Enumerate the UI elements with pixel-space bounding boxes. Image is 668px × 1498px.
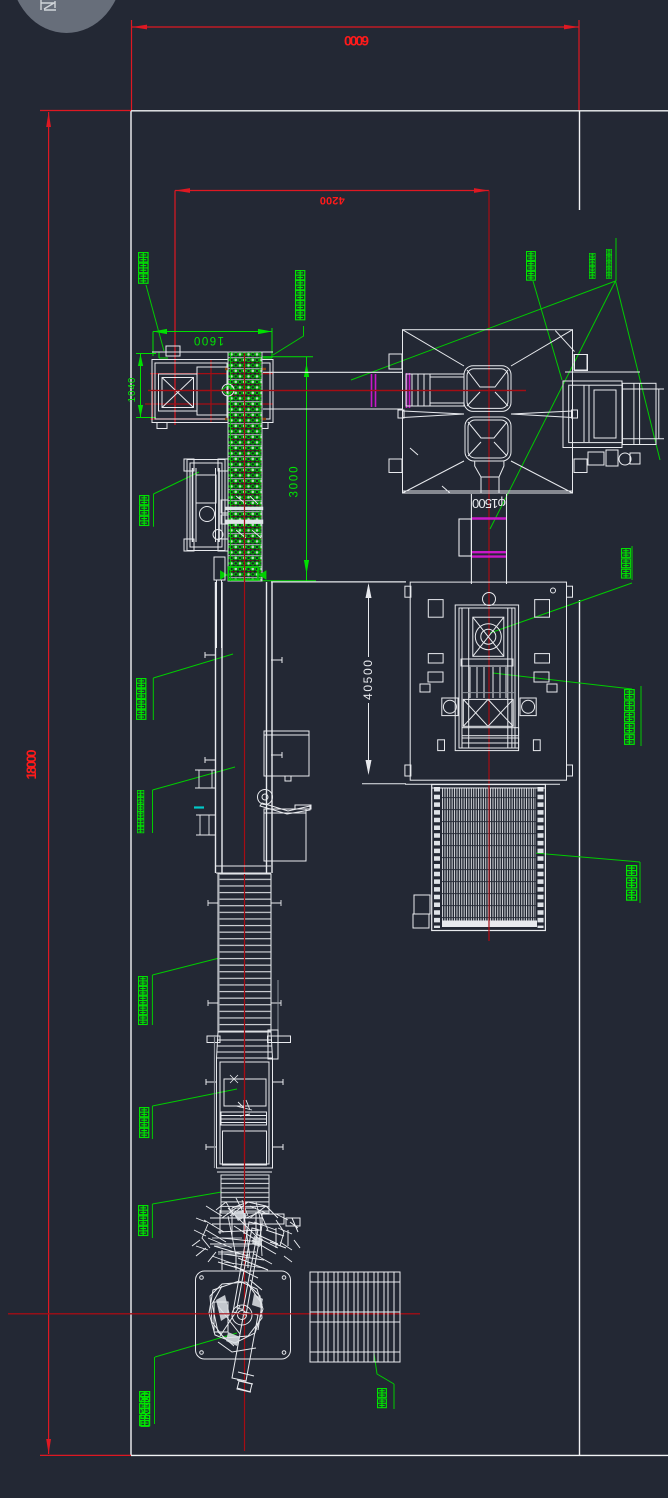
svg-text:6000: 6000 <box>344 33 369 49</box>
svg-text:1040: 1040 <box>127 377 138 402</box>
svg-text:40500: 40500 <box>361 660 375 700</box>
svg-text:18000: 18000 <box>24 750 39 780</box>
svg-text:3000: 3000 <box>289 467 301 498</box>
svg-text:4200: 4200 <box>320 194 345 206</box>
svg-text:1600: 1600 <box>194 334 224 346</box>
svg-text:φ1500: φ1500 <box>472 496 506 511</box>
